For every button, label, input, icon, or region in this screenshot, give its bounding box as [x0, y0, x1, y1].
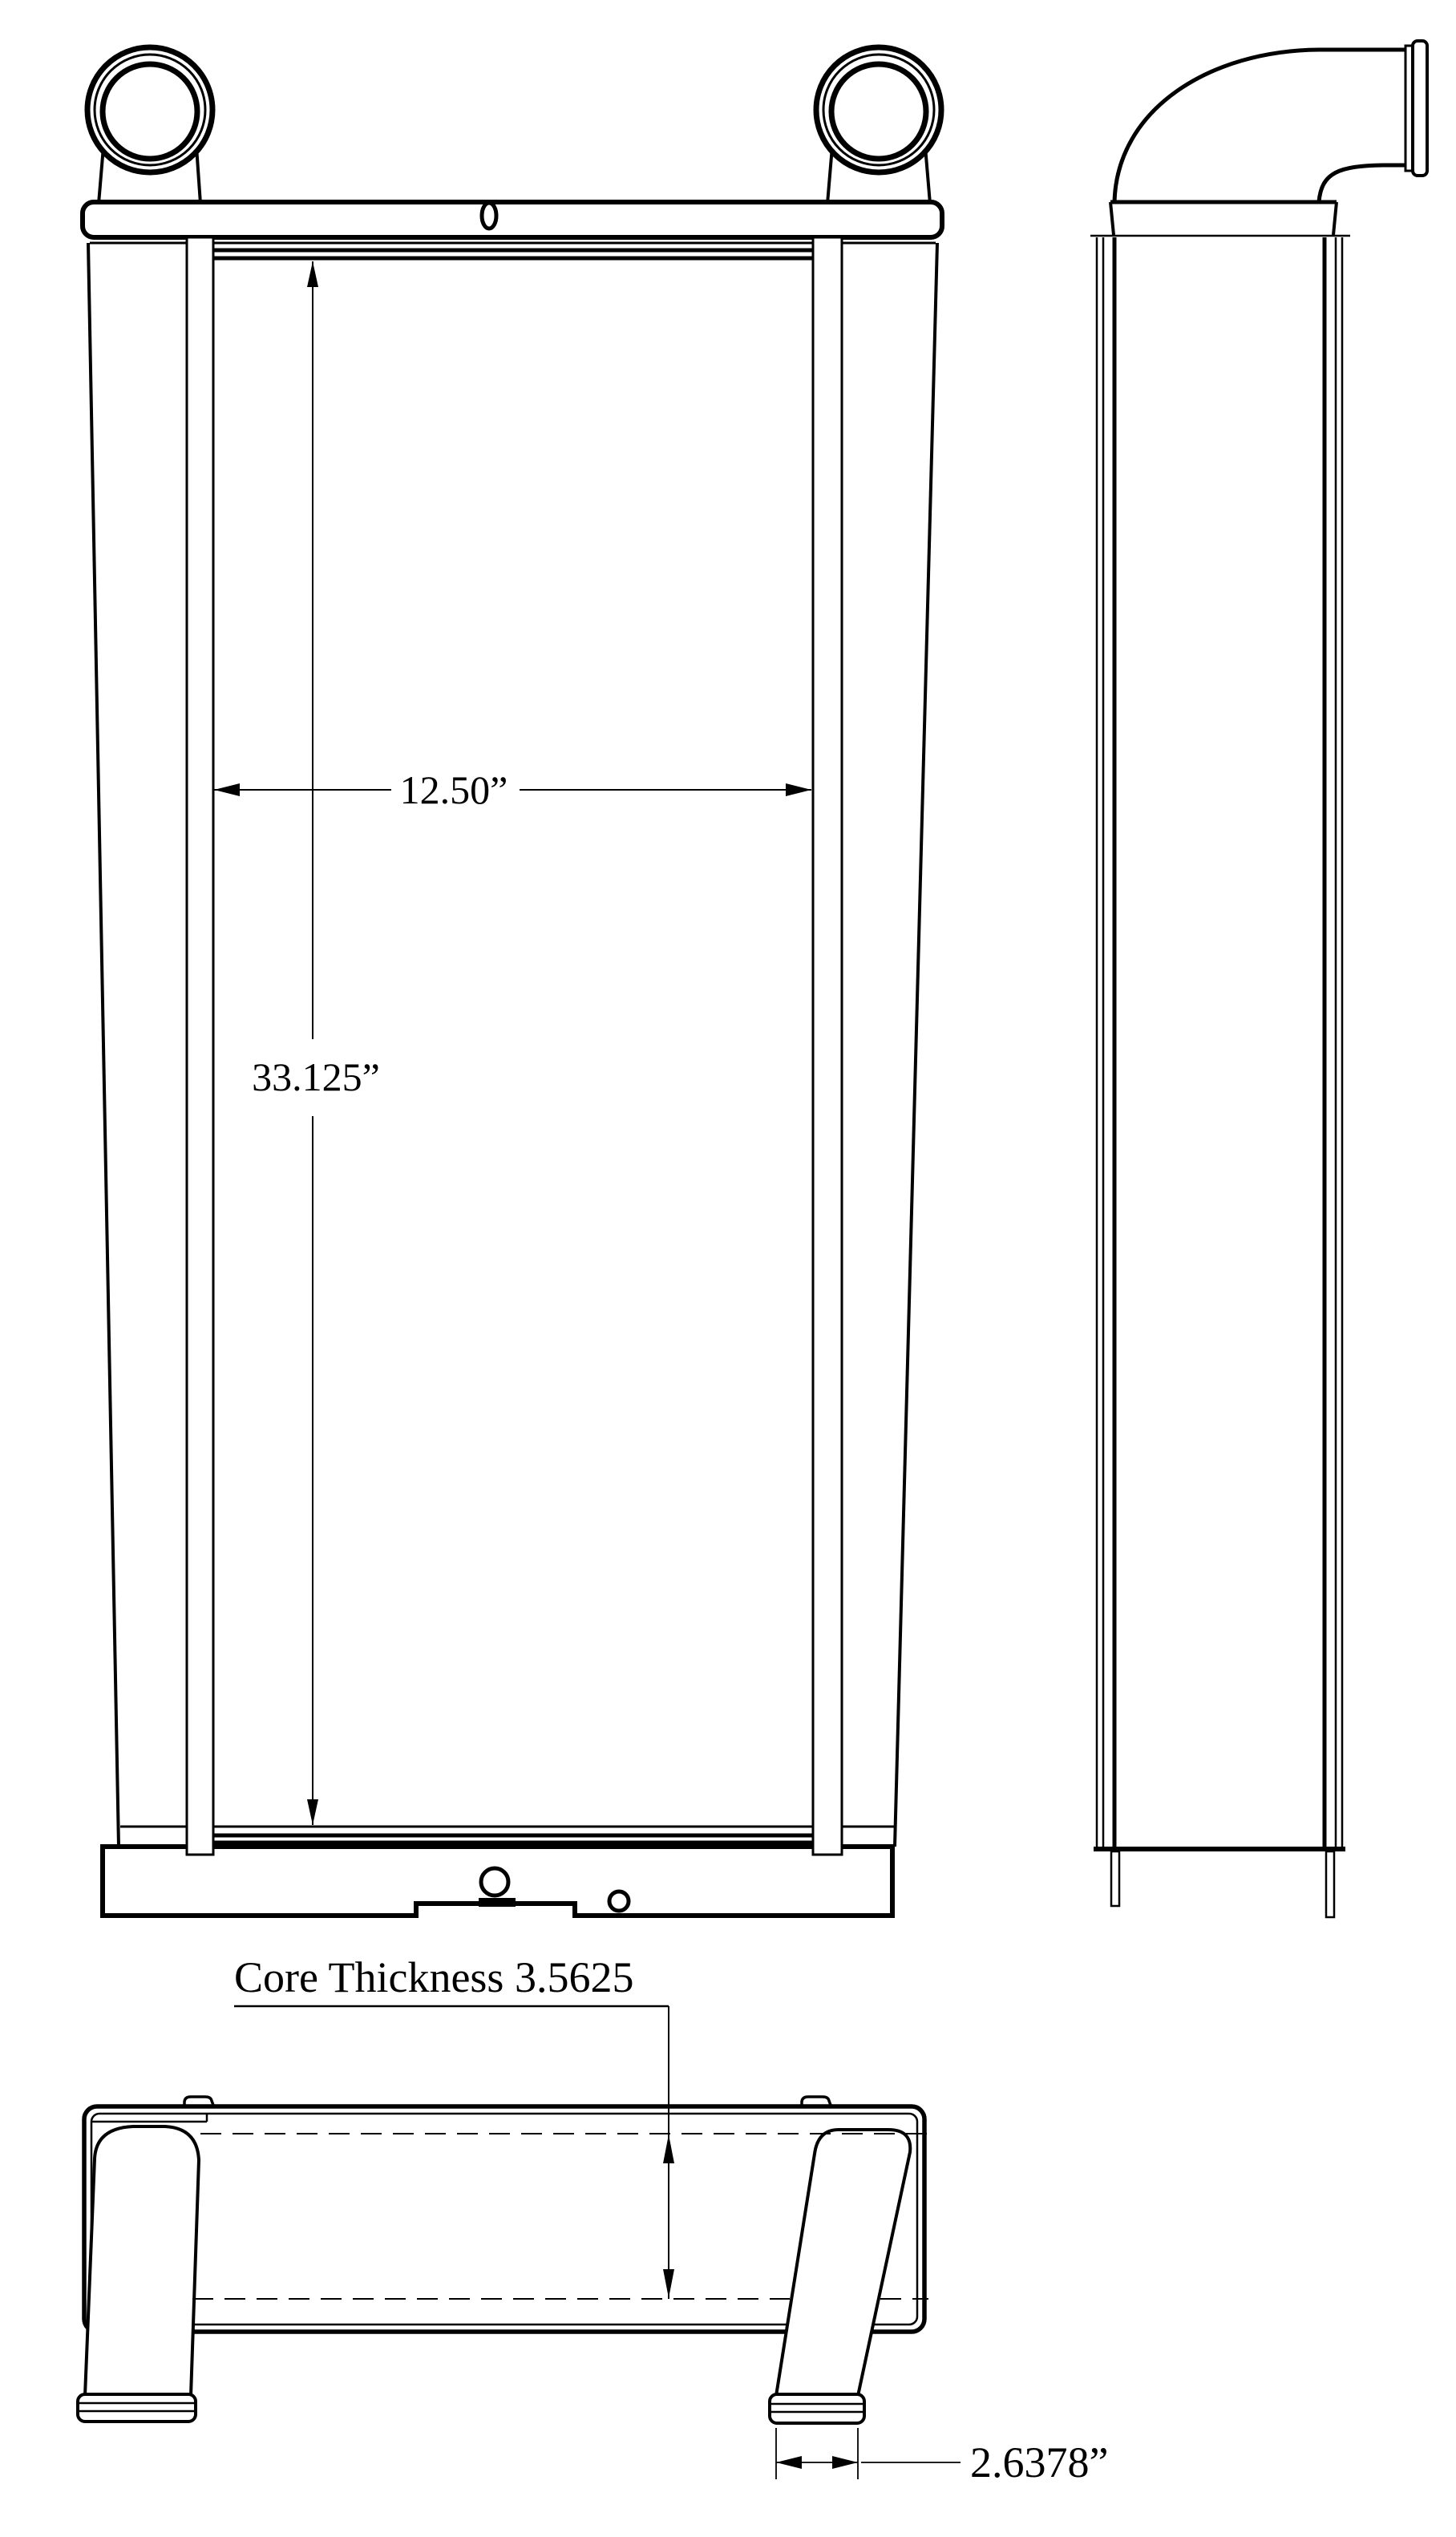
front-right-wall: [895, 243, 937, 1847]
dimension-foot-width: 2.6378”: [776, 2428, 1108, 2486]
front-top-tank: [83, 202, 942, 237]
core-height-label: 33.125”: [252, 1054, 380, 1099]
top-tank-hole: [482, 203, 496, 229]
core-width-label: 12.50”: [400, 767, 508, 812]
left-inlet-port: [87, 47, 212, 172]
front-left-rail: [187, 237, 213, 1855]
foot-width-label: 2.6378”: [970, 2438, 1108, 2486]
bottom-right-foot-flange: [770, 2394, 864, 2423]
bottom-tank-tab: [479, 1898, 516, 1907]
header-plates: [213, 250, 813, 1843]
bottom-left-foot: [85, 2126, 199, 2396]
technical-drawing: 12.50” 33.125” Core Thickness 3.5625 2.6…: [0, 0, 1456, 2537]
front-left-wall: [88, 243, 119, 1847]
front-view: [83, 47, 942, 1916]
bottom-left-foot-flange: [78, 2394, 196, 2422]
side-left-leg: [1111, 1851, 1119, 1906]
arrowhead-right: [786, 783, 811, 796]
arrowhead-right: [832, 2456, 858, 2469]
side-right-leg: [1326, 1851, 1334, 1917]
arrowhead-up: [307, 261, 318, 287]
arrowhead-left: [214, 783, 240, 796]
core-thickness-label: Core Thickness 3.5625: [234, 1953, 633, 2001]
dimension-core-width: 12.50”: [214, 767, 811, 812]
elbow-outer-arc: [1114, 50, 1408, 202]
side-rails: [1097, 237, 1342, 1847]
elbow-flange-outer: [1413, 41, 1427, 176]
arrowhead-left: [776, 2456, 802, 2469]
side-view: [1090, 41, 1427, 1917]
elbow-inner-arc: [1319, 165, 1408, 202]
side-top-tank: [1090, 202, 1350, 236]
dimension-core-height: 33.125”: [252, 261, 380, 1825]
right-inlet-port: [816, 47, 941, 172]
bottom-view: [78, 2097, 928, 2423]
front-right-rail: [813, 237, 842, 1855]
arrowhead-down: [307, 1799, 318, 1825]
